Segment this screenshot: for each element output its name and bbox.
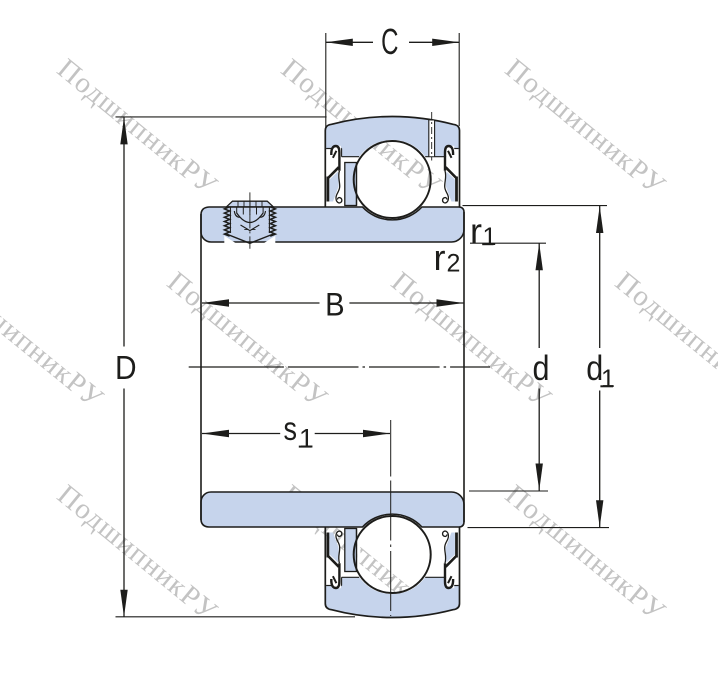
svg-text:r: r [434, 237, 446, 278]
svg-text:ПодшипникРУ: ПодшипникРУ [499, 479, 672, 629]
svg-text:d: d [533, 349, 550, 388]
svg-text:ПодшипникРУ: ПодшипникРУ [385, 266, 558, 416]
svg-text:C: C [381, 21, 398, 62]
svg-text:s: s [284, 410, 298, 447]
svg-text:ПодшипникРУ: ПодшипникРУ [51, 479, 224, 629]
svg-text:ПодшипникРУ: ПодшипникРУ [0, 266, 110, 416]
svg-text:ПодшипникРУ: ПодшипникРУ [499, 53, 672, 203]
svg-text:2: 2 [447, 250, 461, 278]
svg-text:ПодшипникРУ: ПодшипникРУ [51, 53, 224, 203]
svg-text:D: D [115, 350, 137, 387]
svg-text:ПодшипникРУ: ПодшипникРУ [609, 266, 718, 416]
svg-text:r: r [470, 211, 482, 252]
svg-text:ПодшипникРУ: ПодшипникРУ [161, 266, 334, 416]
svg-text:B: B [325, 287, 345, 323]
svg-text:1: 1 [601, 365, 615, 393]
svg-text:1: 1 [299, 424, 314, 454]
svg-text:1: 1 [483, 223, 497, 251]
